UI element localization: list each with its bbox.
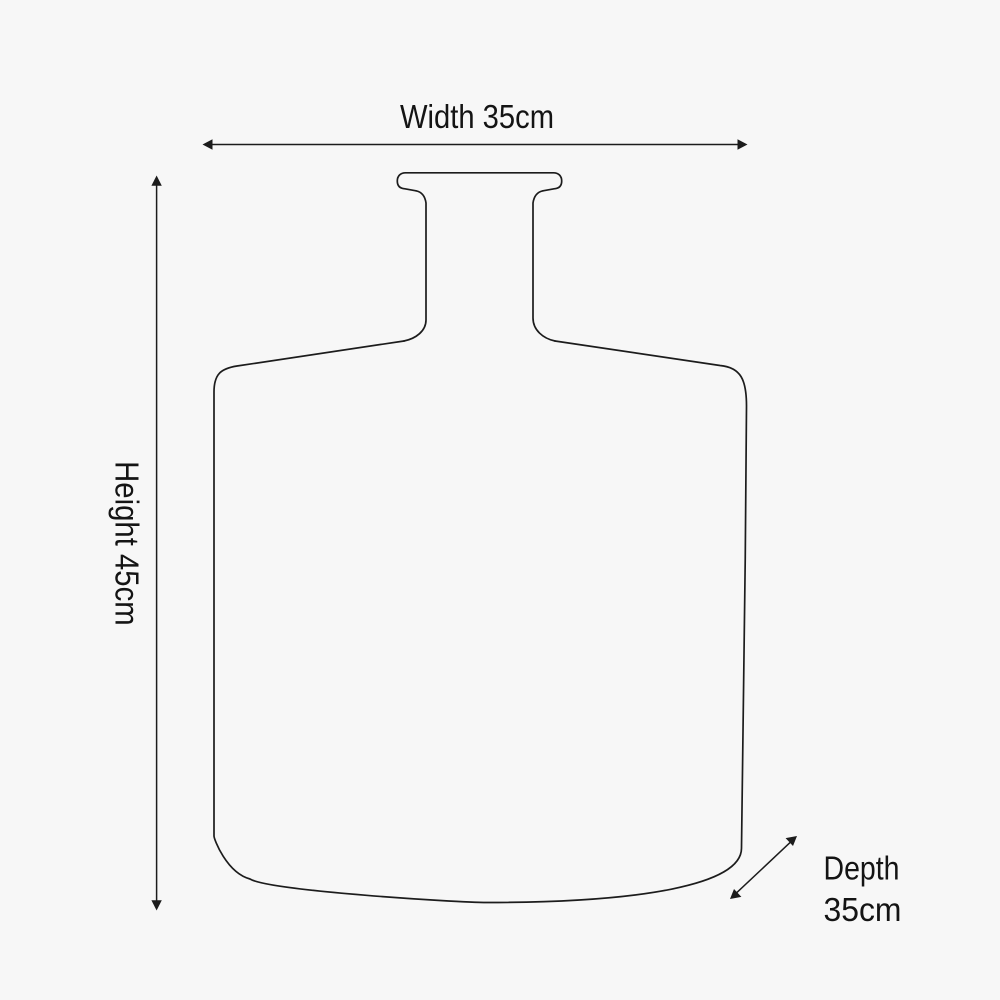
svg-text:Width 35cm: Width 35cm [400, 99, 554, 136]
svg-text:35cm: 35cm [824, 892, 902, 929]
svg-text:Depth: Depth [824, 851, 900, 888]
svg-text:Height 45cm: Height 45cm [108, 461, 145, 626]
